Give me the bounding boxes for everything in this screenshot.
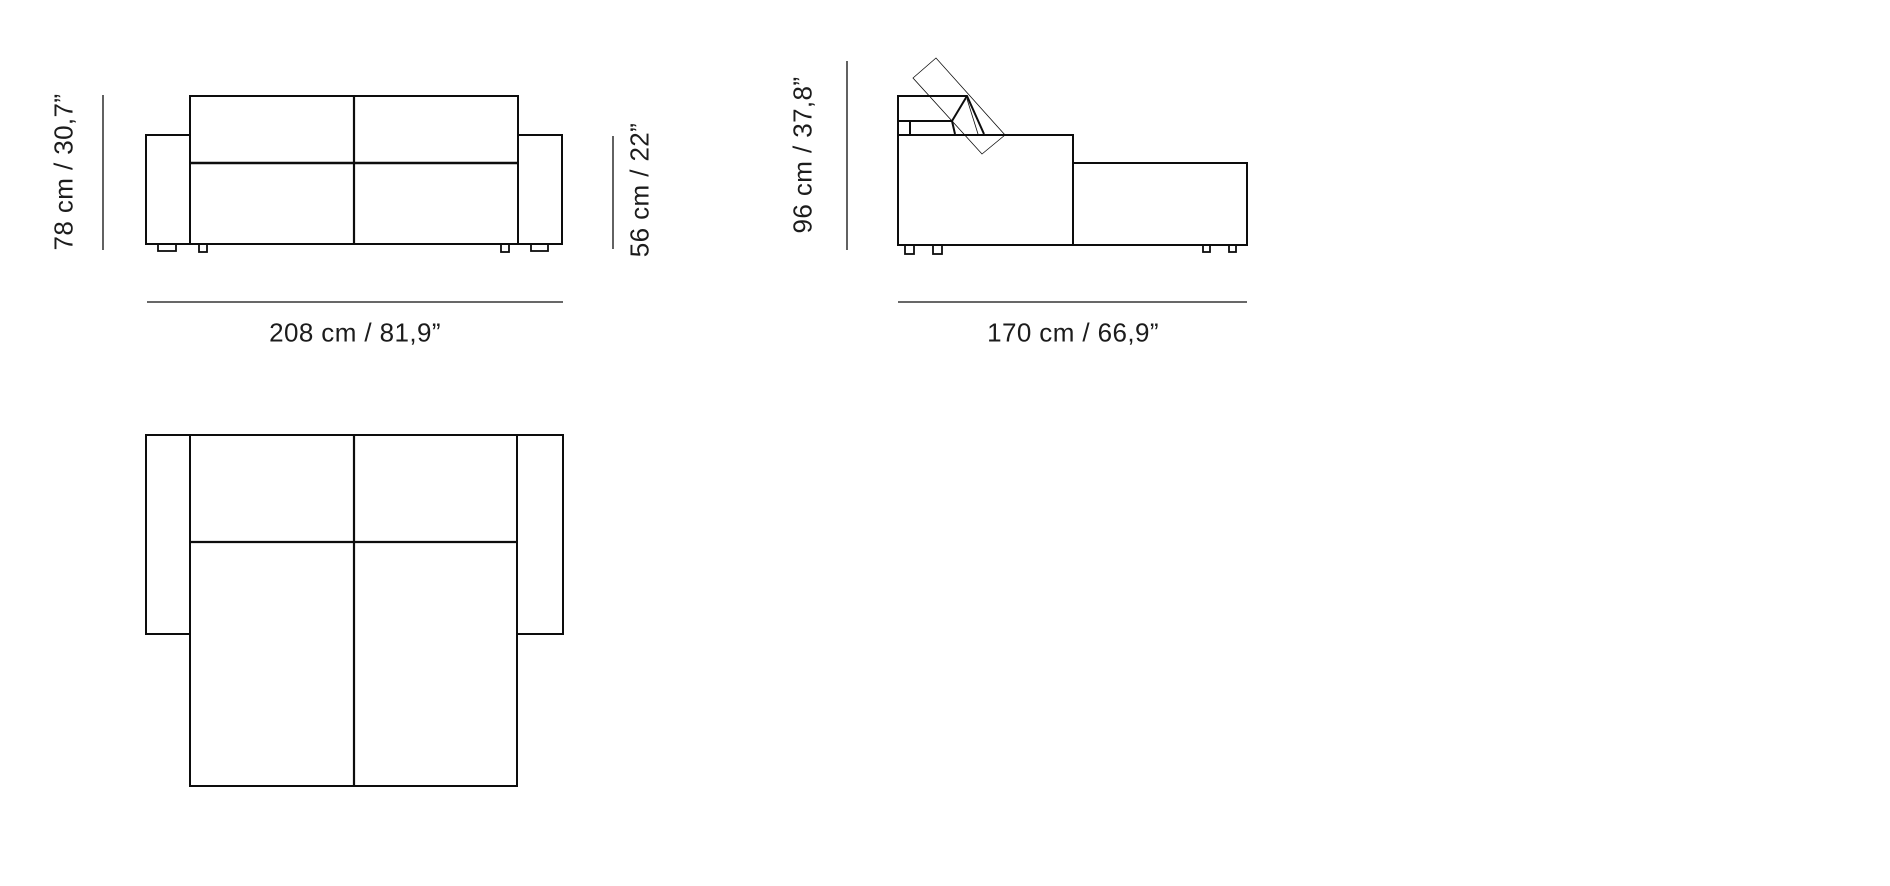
front-arm-height-dimension-label: 56 cm / 22” [625, 123, 656, 257]
front-right-armrest [518, 135, 562, 244]
top-left-armrest [146, 435, 190, 634]
side-height-dimension-label: 96 cm / 37,8” [788, 77, 819, 234]
front-left-armrest [146, 135, 190, 244]
sofa-dimension-diagram: 78 cm / 30,7” 56 cm / 22” 208 cm / 81,9”… [0, 0, 1890, 886]
side-ottoman-outline [1073, 163, 1247, 245]
side-backrest-outline [898, 96, 984, 135]
top-view-drawing [146, 435, 563, 786]
front-view-drawing [103, 95, 613, 302]
side-headrest-reclined-outline [913, 58, 1005, 154]
side-feet [905, 245, 1236, 254]
side-depth-dimension-label: 170 cm / 66,9” [987, 318, 1159, 349]
top-right-armrest [517, 435, 563, 634]
technical-drawing-canvas [0, 0, 1890, 886]
front-width-dimension-label: 208 cm / 81,9” [269, 318, 441, 349]
front-height-dimension-label: 78 cm / 30,7” [49, 94, 80, 251]
side-view-drawing [847, 58, 1247, 302]
front-feet [158, 244, 548, 252]
